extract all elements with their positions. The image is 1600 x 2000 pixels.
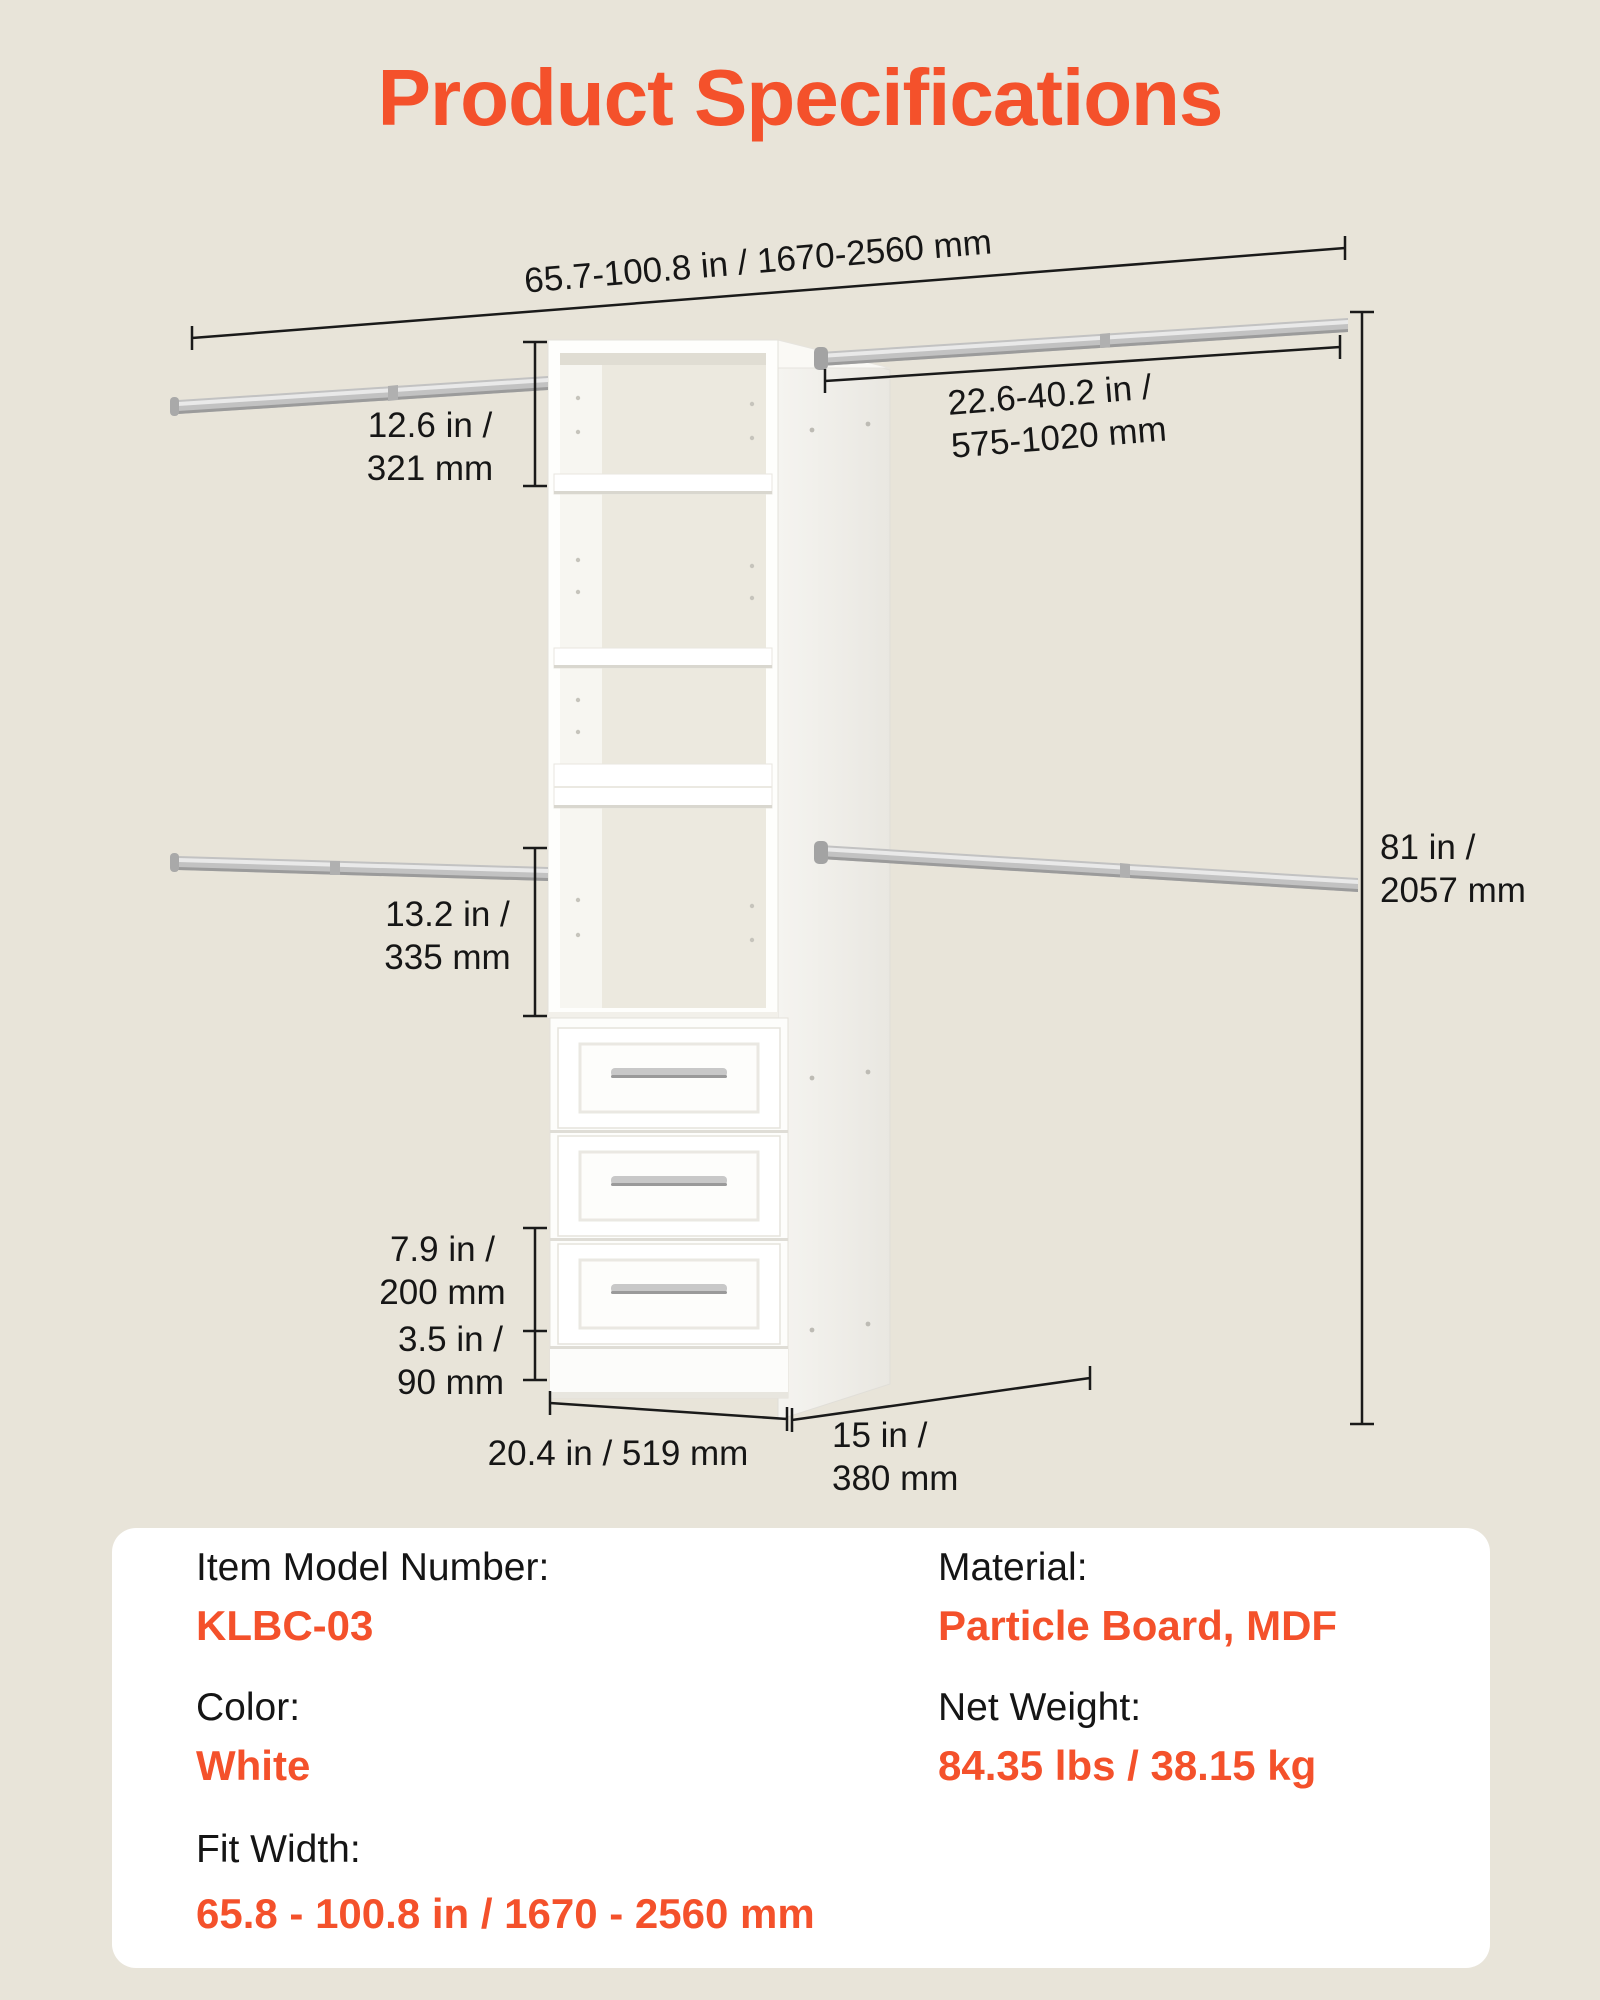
drawer-unit bbox=[550, 1018, 788, 1398]
dim-unit-depth: 15 in / 380 mm bbox=[832, 1414, 958, 1501]
hanging-rod-bottom-left bbox=[170, 853, 548, 881]
product-spec-page: Product Specifications bbox=[0, 0, 1600, 2000]
spec-value-net-weight: 84.35 lbs / 38.15 kg bbox=[938, 1742, 1316, 1790]
spec-label-model: Item Model Number: bbox=[196, 1546, 549, 1590]
spec-value-model: KLBC-03 bbox=[196, 1602, 373, 1650]
spec-value-material: Particle Board, MDF bbox=[938, 1602, 1337, 1650]
dim-drawer-height: 7.9 in / 200 mm bbox=[350, 1228, 535, 1315]
dim-base-height: 3.5 in / 90 mm bbox=[358, 1318, 543, 1405]
spec-label-material: Material: bbox=[938, 1546, 1088, 1590]
hanging-rod-top-right bbox=[814, 318, 1348, 370]
spec-value-color: White bbox=[196, 1742, 310, 1790]
dim-total-height: 81 in / 2057 mm bbox=[1380, 826, 1526, 913]
hanging-rod-bottom-right bbox=[814, 841, 1358, 892]
spec-panel: Item Model Number: KLBC-03 Color: White … bbox=[112, 1528, 1490, 1968]
dim-unit-width: 20.4 in / 519 mm bbox=[488, 1432, 749, 1475]
dim-middle-section-height: 13.2 in / 335 mm bbox=[355, 893, 540, 980]
spec-label-net-weight: Net Weight: bbox=[938, 1686, 1141, 1730]
dim-rod-length: 22.6-40.2 in / 575-1020 mm bbox=[946, 365, 1168, 469]
dim-top-section-height: 12.6 in / 321 mm bbox=[340, 404, 520, 491]
spec-label-fit-width: Fit Width: bbox=[196, 1828, 361, 1872]
spec-label-color: Color: bbox=[196, 1686, 300, 1730]
spec-value-fit-width: 65.8 - 100.8 in / 1670 - 2560 mm bbox=[196, 1890, 815, 1938]
